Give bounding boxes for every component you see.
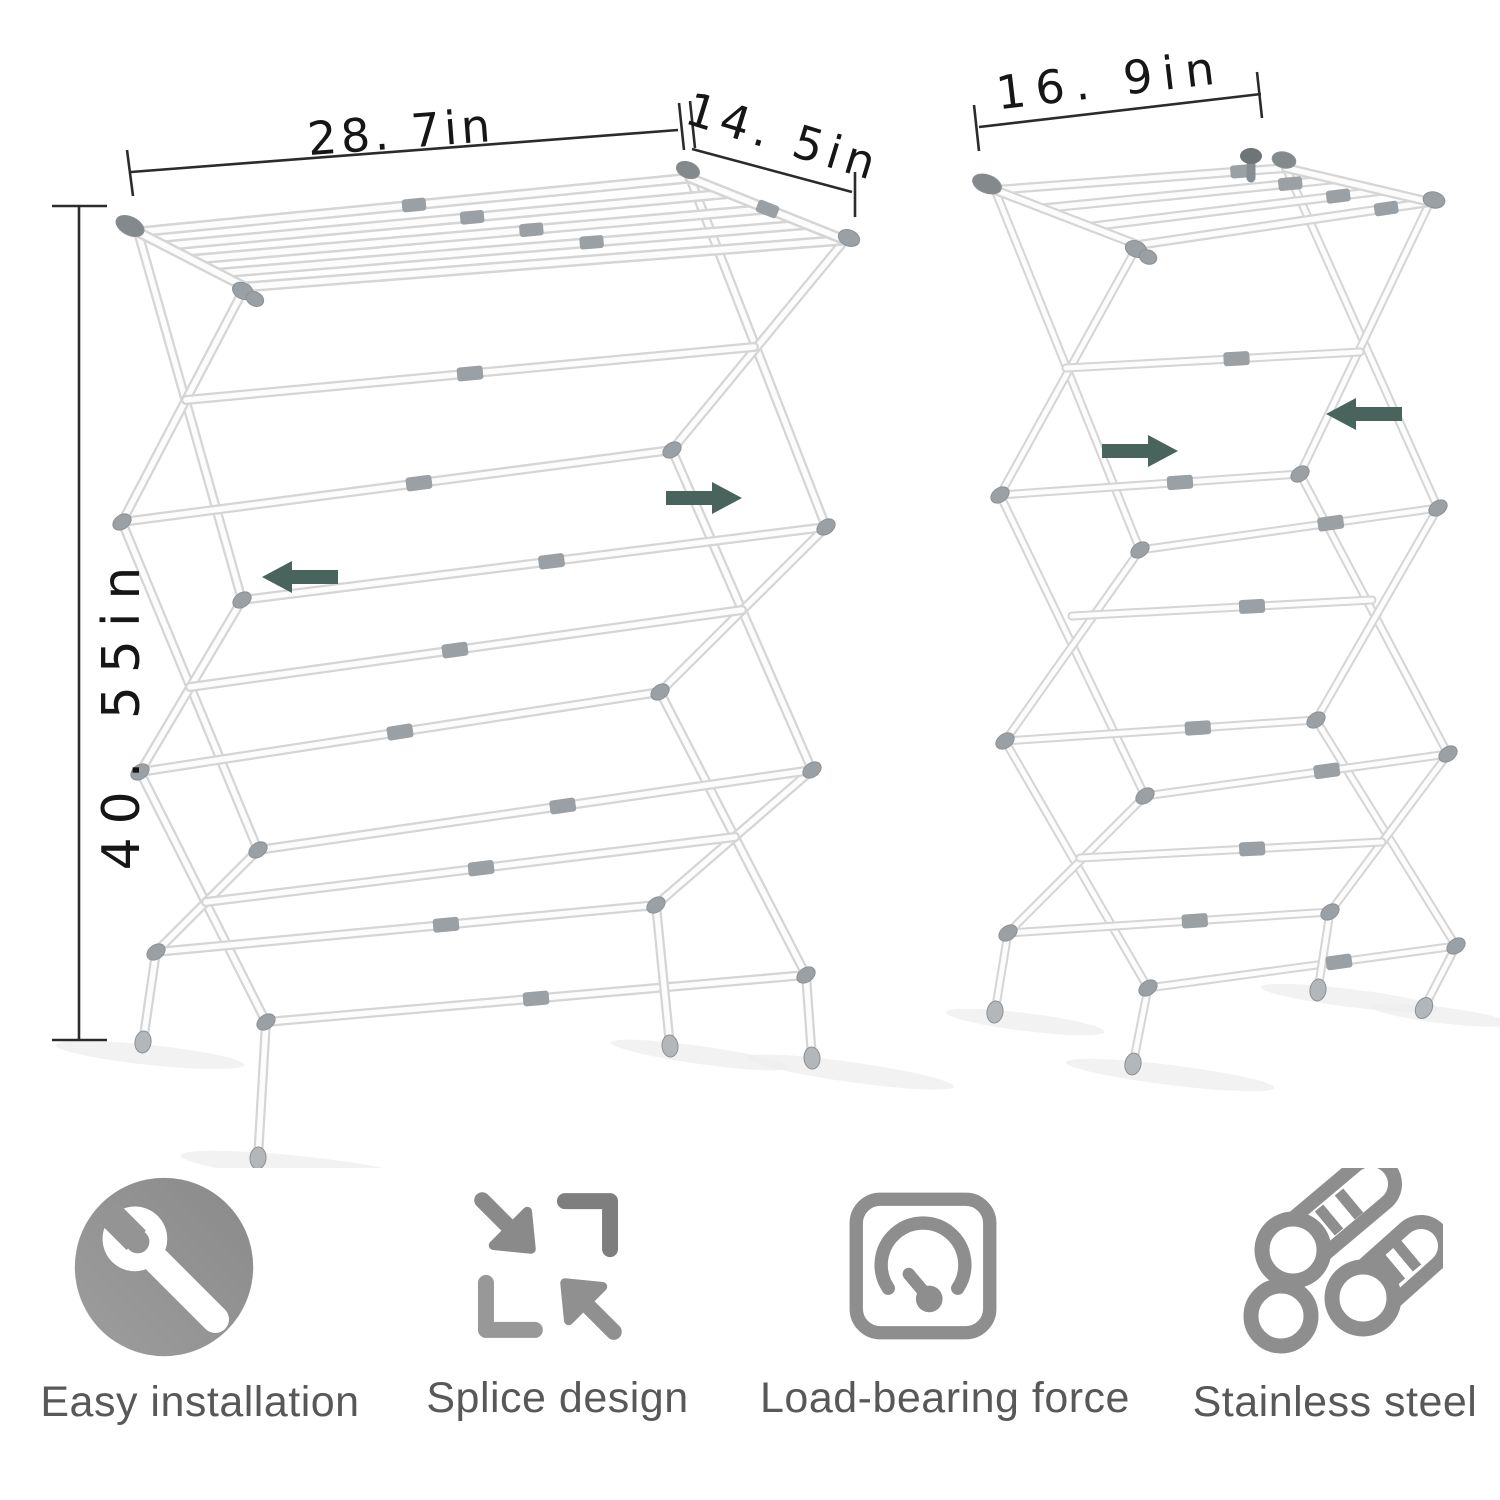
splice-sleeve [755,199,780,219]
splice-sleeve [1325,953,1353,970]
feature-easy-installation: Easy installation [30,1168,370,1427]
floor-shadows [54,978,1500,1168]
dimension-label-expanded-width: 28. 7in [305,98,496,166]
drying-rack-folded [970,148,1468,1076]
splice-sleeve [549,797,577,815]
splice-sleeve [519,222,544,237]
joint-cap [249,1147,266,1168]
expand-arrows-icon [454,1168,642,1364]
splice-sleeve [1313,762,1341,779]
splice-sleeve [386,723,414,741]
steel-pipes-icon [1227,1168,1443,1368]
splice-sleeve [1239,841,1266,856]
wrench-icon [66,1168,262,1368]
collapse-arrow-left [1102,435,1178,467]
rack-diagram: 28. 7in 14. 5in 40. 55in 16. 9in [0,0,1500,1168]
dimension-folded-width: 16. 9in [974,40,1262,151]
splice-sleeve [432,917,459,933]
gauge-icon [834,1168,1012,1364]
splice-sleeve [1326,188,1351,204]
feature-stainless-steel: Stainless steel [1165,1168,1500,1427]
dimension-label-depth: 14. 5in [680,81,888,191]
feature-label: Load-bearing force [760,1374,1085,1423]
splice-sleeve [467,860,495,877]
splice-sleeve [1181,913,1208,929]
splice-sleeve [405,474,433,491]
feature-label: Stainless steel [1165,1378,1500,1427]
dimension-annotations: 28. 7in 14. 5in 40. 55in 16. 9in [52,40,1262,1040]
splice-sleeve [401,197,426,212]
extend-arrow-right [666,482,742,514]
splice-sleeve [579,235,604,250]
drying-rack-expanded [110,158,862,1168]
splice-sleeve [460,210,485,225]
feature-load-bearing: Load-bearing force [760,1168,1085,1423]
splice-sleeve [456,365,483,381]
splice-sleeve [1167,475,1194,491]
splice-sleeve [1278,176,1303,191]
feature-label: Easy installation [30,1378,370,1427]
splice-sleeve [1184,720,1211,736]
feature-label: Splice design [400,1374,715,1423]
splice-sleeve [441,641,469,658]
features-row: Easy installation Splice design Load-bea… [0,1168,1500,1488]
dimension-label-folded-width: 16. 9in [993,40,1227,120]
splice-sleeve [1239,599,1266,614]
splice-sleeve [522,990,549,1006]
dimension-height: 40. 55in [52,206,152,1040]
product-infographic: 28. 7in 14. 5in 40. 55in 16. 9in [0,0,1500,1500]
feature-splice-design: Splice design [400,1168,715,1423]
dimension-label-height: 40. 55in [92,554,152,871]
splice-sleeve [1223,351,1250,366]
splice-sleeve [538,553,566,570]
splice-sleeve [1373,200,1399,216]
